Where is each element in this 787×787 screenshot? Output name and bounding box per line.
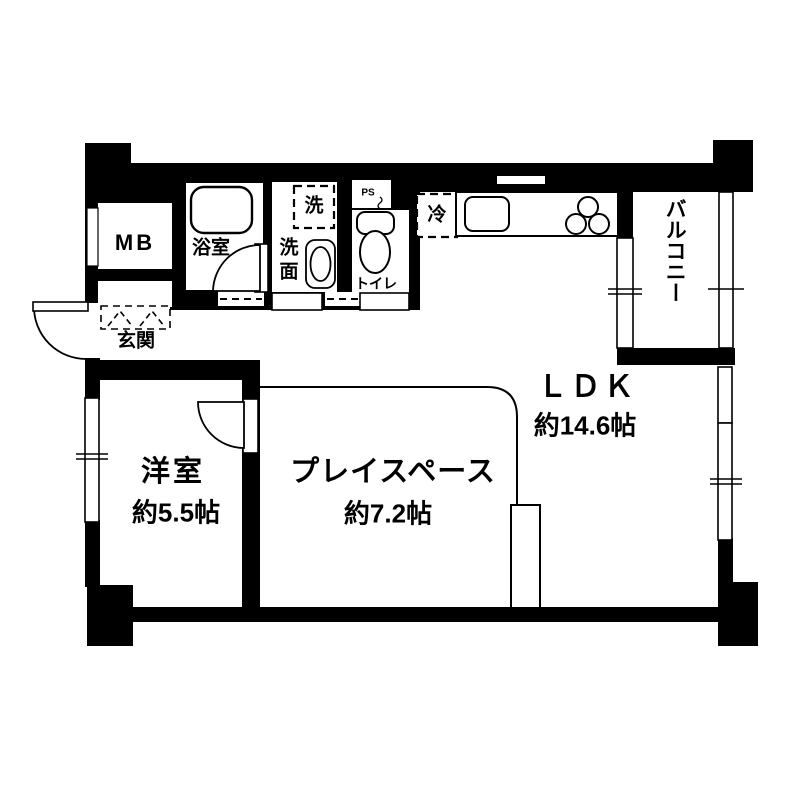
genkan-chevron-1 [108,311,132,326]
wall-western-room-top [85,360,260,380]
washing-machine-label: 洗 [304,197,323,218]
western-room-door-swing [198,402,244,448]
floor-plan-drawing [0,0,787,787]
bathtub-icon [191,187,252,233]
wall-left-lower [85,520,100,587]
wall-balcony-bottom [617,348,735,365]
ldk-area-label: 約14.6帖 [534,412,637,441]
basin-bowl-icon [311,247,331,281]
western-room-label: 洋室 [141,457,205,489]
kitchen-vent-slit [497,176,545,184]
toilet-door [360,293,409,310]
genkan-step-chevrons [108,311,164,326]
window-ldk-upper [718,367,732,423]
window-ldk-lower [718,423,732,540]
wall-right-lower [718,538,733,585]
entrance-label: 玄関 [117,332,155,353]
balcony-railing [719,192,733,348]
kitchen-sink-icon [465,197,509,231]
washroom-door [272,293,322,310]
burner-right [589,214,609,234]
balcony-label: バルコニー [663,198,686,338]
toilet-bowl-icon [360,231,390,273]
genkan-step-outline [101,306,170,329]
wall-balcony-left [617,190,633,240]
western-room-door-leaf [243,399,258,453]
window-western-room [85,398,99,522]
play-space-label: プレイスペース [290,457,496,489]
floor-plan-page: MB 玄関 浴室 洗 洗面 トイレ PS 冷 バルコニー ＬＤＫ 約14.6帖 … [0,0,787,787]
meter-box-label: MB [115,231,155,255]
pillar-bottom-left [87,585,133,646]
room-entrance-upper [98,281,172,307]
ldk-label: ＬＤＫ [538,371,637,404]
western-room-area-label: 約5.5帖 [132,499,220,528]
pipe-space-label: PS [361,188,374,199]
meter-box-hatch [87,208,98,266]
entrance-door-leaf [33,302,88,311]
wall-bottom [128,607,720,622]
washroom-label: 洗面 [278,236,300,284]
genkan-chevron-2 [140,311,164,326]
bathroom-label: 浴室 [192,239,230,260]
play-space-sliding-partition [511,505,540,608]
burner-left [566,214,586,234]
refrigerator-label: 冷 [427,206,446,227]
wall-left-upper [85,266,100,304]
toilet-label: トイレ [355,276,397,291]
pillar-bottom-right [718,582,758,646]
entrance-door-swing [34,307,86,359]
window-balcony-access [617,238,633,348]
play-space-area-label: 約7.2帖 [344,500,432,529]
pillar-top-right [713,140,753,192]
wall-western-room-right [242,360,260,607]
